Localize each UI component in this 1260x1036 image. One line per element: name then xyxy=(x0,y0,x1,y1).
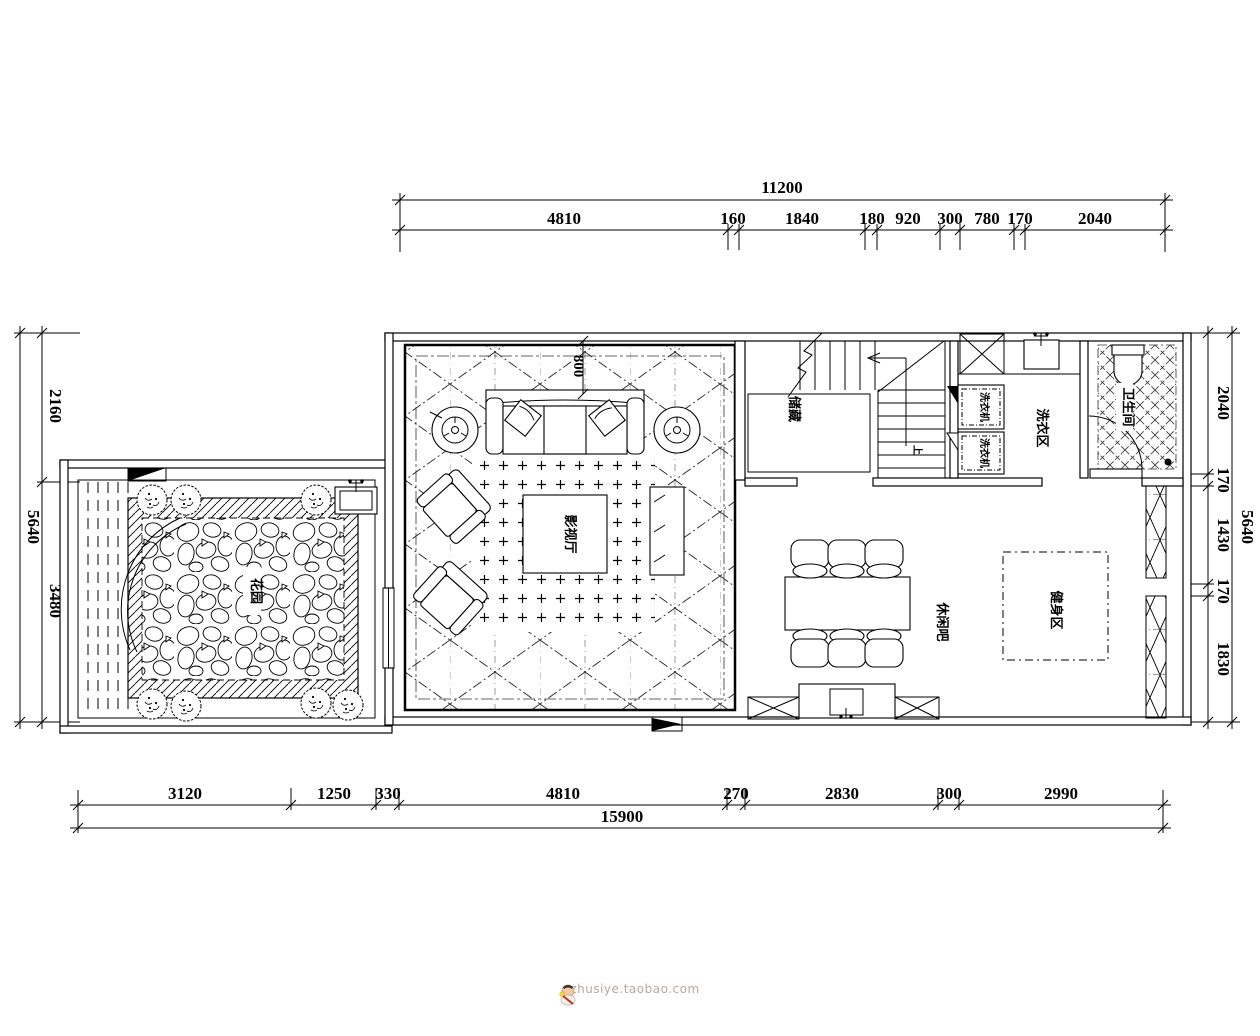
dim-top-seg: 300 xyxy=(937,209,963,228)
room-label-bathroom: 卫生间 xyxy=(1120,387,1136,426)
sofa xyxy=(486,390,644,454)
leisure-bar: 休闲吧 xyxy=(748,486,1166,719)
dim-right-seg: 1830 xyxy=(1214,642,1233,676)
staircase: 上 xyxy=(788,333,945,478)
dimension-bottom: 3120 1250 330 4810 270 2830 300 2990 159… xyxy=(70,784,1171,833)
window-garden-media xyxy=(383,588,394,668)
dim-top-seg: 920 xyxy=(895,209,921,228)
washing-machine-1: 洗衣机 xyxy=(958,385,1004,429)
wall-cross-box xyxy=(748,697,799,719)
garden-sink xyxy=(335,479,377,514)
dim-right-seg: 170 xyxy=(1214,578,1233,604)
garden-room: 花园 xyxy=(60,460,392,733)
bar-sink-cabinet xyxy=(799,684,895,719)
dim-right-seg: 170 xyxy=(1214,467,1233,493)
dim-left-seg: 2160 xyxy=(46,389,65,423)
tick-marks xyxy=(395,195,1170,235)
washing-machine-2: 洗衣机 xyxy=(958,432,1004,474)
dim-bottom-seg: 3120 xyxy=(168,784,202,803)
room-label-laundry: 洗衣区 xyxy=(1034,408,1050,447)
dining-table xyxy=(785,577,910,630)
dim-bottom-seg: 4810 xyxy=(546,784,580,803)
dim-top-seg: 160 xyxy=(720,209,746,228)
dim-bottom-seg: 2990 xyxy=(1044,784,1078,803)
media-room: 影视厅 800 xyxy=(405,336,735,731)
toilet xyxy=(1112,345,1144,385)
tree xyxy=(171,485,201,515)
svg-text:800: 800 xyxy=(570,355,586,378)
dim-top-seg: 180 xyxy=(859,209,885,228)
dim-top-seg: 1840 xyxy=(785,209,819,228)
laundry-room: 洗衣机 洗衣机 洗衣区 xyxy=(947,332,1088,478)
dim-bottom-total: 15900 xyxy=(601,807,644,826)
dim-right-total: 5640 xyxy=(1238,510,1257,544)
dimension-top: 11200 4810 160 1840 180 920 300 780 170 … xyxy=(392,178,1173,252)
bar-chair xyxy=(865,629,903,667)
speaker-right xyxy=(654,407,700,453)
fitness-area: 健身区 xyxy=(1003,552,1108,660)
room-label-garden: 花园 xyxy=(248,578,264,604)
window-right-lower xyxy=(1146,596,1166,718)
tree xyxy=(171,691,201,721)
room-label-storage: 储藏 xyxy=(786,395,802,422)
stair-diagonal xyxy=(878,341,944,392)
tree xyxy=(301,688,331,718)
svg-text:洗衣机: 洗衣机 xyxy=(978,438,991,468)
floor-plan-page: { "dimensions": { "top": {"total": "1120… xyxy=(0,0,1260,1036)
dim-right-seg: 2040 xyxy=(1214,386,1233,420)
bar-chair xyxy=(791,629,829,667)
watermark: zhusiye.taobao.com xyxy=(555,982,715,996)
dim-top-seg: 2040 xyxy=(1078,209,1112,228)
wall-cross-box xyxy=(895,697,939,719)
dim-top-seg: 170 xyxy=(1007,209,1033,228)
floor-plan-canvas: 11200 4810 160 1840 180 920 300 780 170 … xyxy=(0,0,1260,1036)
dimension-right: 2040 170 1430 170 1830 5640 xyxy=(1185,326,1257,729)
dim-right-seg: 1430 xyxy=(1214,518,1233,552)
tree xyxy=(137,485,167,515)
dim-bottom-seg: 330 xyxy=(375,784,401,803)
dimension-left: 2160 3480 5640 xyxy=(14,326,80,729)
tree xyxy=(301,485,331,515)
room-label-leisure-bar: 休闲吧 xyxy=(934,601,950,641)
tree xyxy=(333,690,363,720)
floor-drain xyxy=(1165,459,1172,466)
bathroom: 卫生间 xyxy=(1089,345,1183,486)
dim-top-seg: 4810 xyxy=(547,209,581,228)
bar-chair xyxy=(828,629,866,667)
stair-break-line xyxy=(788,333,822,397)
tv-cabinet xyxy=(650,487,684,575)
garden-entry-marker xyxy=(128,468,166,481)
dim-bottom-seg: 300 xyxy=(936,784,962,803)
room-label-media: 影视厅 xyxy=(562,514,578,553)
dim-bottom-seg: 2830 xyxy=(825,784,859,803)
stair-direction-arrow xyxy=(868,353,906,446)
window-right-upper xyxy=(1146,486,1166,578)
tree xyxy=(137,689,167,719)
svg-text:洗衣机: 洗衣机 xyxy=(978,392,991,422)
dim-left-total: 5640 xyxy=(24,510,43,544)
dim-top-seg: 780 xyxy=(974,209,1000,228)
bar-chair xyxy=(865,540,903,578)
dim-bottom-seg: 270 xyxy=(723,784,749,803)
room-label-fitness: 健身区 xyxy=(1048,590,1064,629)
watermark-logo-icon xyxy=(555,982,581,1006)
stair-up-label: 上 xyxy=(911,445,924,455)
dim-top-total: 11200 xyxy=(761,178,803,197)
bar-chair xyxy=(828,540,866,578)
dim-bottom-seg: 1250 xyxy=(317,784,351,803)
bar-chair xyxy=(791,540,829,578)
